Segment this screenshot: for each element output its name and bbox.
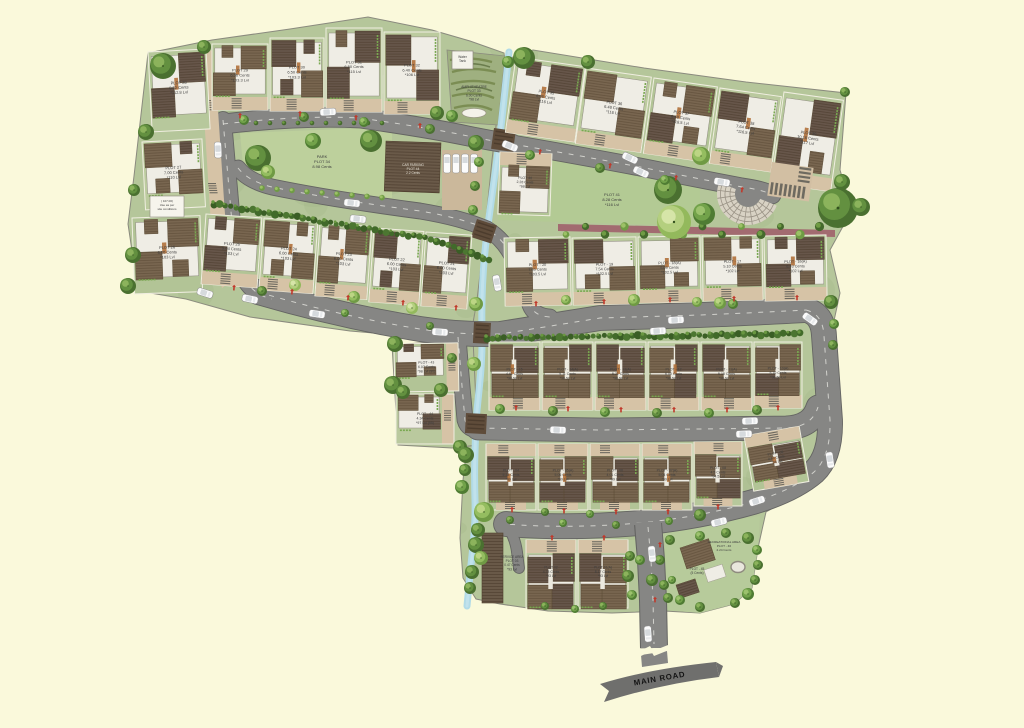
- svg-text:PLOT - 11(A)5.18 Cents*98.50 L: PLOT - 11(A)5.18 Cents*98.50 Lvl: [716, 368, 737, 381]
- svg-text:PLOT 376.48 Cents*118.5 Lvl: PLOT 376.48 Cents*118.5 Lvl: [670, 109, 691, 126]
- svg-text:PLOT - 154.61 Cents*98.50 Lvl: PLOT - 154.61 Cents*98.50 Lvl: [506, 368, 523, 381]
- svg-text:PLOT - 197.54 Cents*102.5 Lvl: PLOT - 197.54 Cents*102.5 Lvl: [595, 262, 614, 276]
- svg-text:PLOT 296.06 Cents*103.3 Lvl: PLOT 296.06 Cents*103.3 Lvl: [230, 68, 249, 83]
- svg-text:PLOT - 13(A)5.21 Cents*98.50 L: PLOT - 13(A)5.21 Cents*98.50 Lvl: [610, 368, 631, 381]
- svg-text:PLOT - 436.07 Cents*98 Lvl (95: PLOT - 436.07 Cents*98 Lvl (95): [417, 360, 435, 373]
- svg-text:PLOT 266.00 Cents*103 Lvl: PLOT 266.00 Cents*103 Lvl: [157, 244, 177, 259]
- svg-text:PLOT 288.52 Cents*112.8 Lvl: PLOT 288.52 Cents*112.8 Lvl: [169, 80, 189, 96]
- svg-text:PLOT - 14(A)5.11 Cents*98.50 L: PLOT - 14(A)5.11 Cents*98.50 Lvl: [557, 368, 578, 381]
- svg-text:PLOT 316.50 Cents*115 Lvl: PLOT 316.50 Cents*115 Lvl: [344, 59, 363, 74]
- svg-text:PLOT - 084.5 Cents*94.5 Lvl: PLOT - 084.5 Cents*94.5 Lvl: [710, 466, 726, 479]
- svg-text:PLOT - 207.65 Cents*103.5 Lvl: PLOT - 207.65 Cents*103.5 Lvl: [528, 263, 547, 277]
- svg-text:PLOT 418.28 Cents*116 Lvl: PLOT 418.28 Cents*116 Lvl: [602, 192, 621, 207]
- svg-text:PLOT - 45(5 Cents): PLOT - 45(5 Cents): [690, 567, 705, 575]
- svg-text:PLOT 387.64 Cents*116.5 Lvl: PLOT 387.64 Cents*116.5 Lvl: [735, 119, 756, 136]
- svg-text:PLOT - 444.34 Cents*97 Lvl (95: PLOT - 444.34 Cents*97 Lvl (95): [416, 412, 434, 425]
- svg-text:PLOT 306.50 Cents*103.3 Lvl: PLOT 306.50 Cents*103.3 Lvl: [287, 65, 306, 80]
- svg-text:PLOT - 10(A)5.10 Cents*98.50 L: PLOT - 10(A)5.10 Cents*98.50 Lvl: [768, 367, 789, 380]
- svg-text:PLOT - 126.00 Cents*98.50 Lvl: PLOT - 126.00 Cents*98.50 Lvl: [665, 368, 682, 381]
- svg-text:PLOT 277.00 Cents*110 Lvl: PLOT 277.00 Cents*110 Lvl: [164, 164, 184, 180]
- svg-text:PLOT 326.40 Cents*106 Lvl: PLOT 326.40 Cents*106 Lvl: [402, 62, 421, 77]
- svg-text:PLOT - 175.10 Cents*102 Lvl: PLOT - 175.10 Cents*102 Lvl: [723, 260, 742, 274]
